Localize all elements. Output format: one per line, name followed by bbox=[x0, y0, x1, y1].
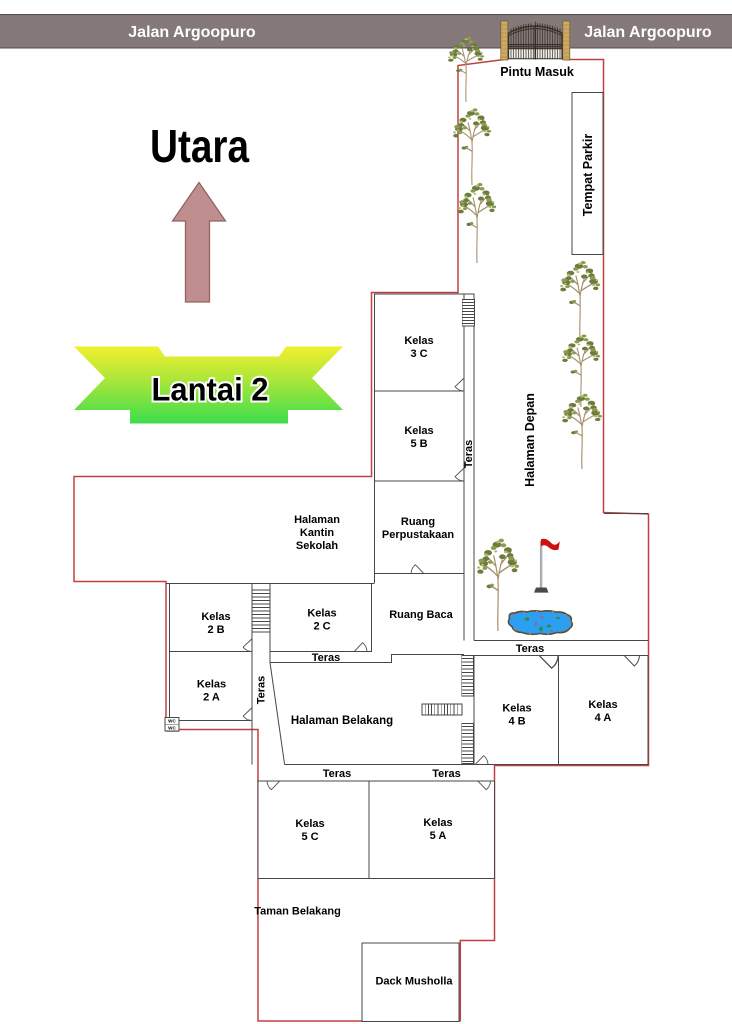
svg-text:Teras: Teras bbox=[323, 768, 352, 780]
svg-text:Jalan Argoopuro: Jalan Argoopuro bbox=[584, 24, 712, 41]
svg-text:Kelas: Kelas bbox=[588, 699, 617, 711]
svg-text:Kelas: Kelas bbox=[404, 425, 433, 437]
svg-text:Halaman: Halaman bbox=[294, 514, 340, 526]
svg-text:4 B: 4 B bbox=[508, 716, 525, 728]
svg-text:Kelas: Kelas bbox=[197, 679, 226, 691]
svg-text:Kelas: Kelas bbox=[295, 818, 324, 830]
svg-text:Teras: Teras bbox=[516, 643, 545, 655]
svg-text:Kelas: Kelas bbox=[307, 608, 336, 620]
svg-text:Kelas: Kelas bbox=[201, 611, 230, 623]
svg-text:Taman Belakang: Taman Belakang bbox=[254, 906, 341, 918]
svg-text:3 C: 3 C bbox=[410, 348, 427, 360]
svg-text:Teras: Teras bbox=[312, 652, 341, 664]
svg-text:Kelas: Kelas bbox=[423, 817, 452, 829]
svg-text:Kelas: Kelas bbox=[502, 703, 531, 715]
svg-text:Halaman Belakang: Halaman Belakang bbox=[291, 715, 393, 727]
svg-text:2 A: 2 A bbox=[203, 692, 220, 704]
svg-text:Teras: Teras bbox=[432, 768, 461, 780]
svg-text:2 C: 2 C bbox=[313, 621, 330, 633]
svg-text:5 A: 5 A bbox=[430, 830, 447, 842]
svg-text:Lantai 2: Lantai 2 bbox=[152, 372, 269, 408]
svg-text:5 B: 5 B bbox=[410, 438, 427, 450]
svg-text:Teras: Teras bbox=[463, 440, 475, 469]
svg-text:Perpustakaan: Perpustakaan bbox=[382, 529, 454, 541]
svg-text:Utara: Utara bbox=[150, 120, 249, 172]
svg-text:5 C: 5 C bbox=[301, 831, 318, 843]
svg-text:Ruang: Ruang bbox=[401, 516, 435, 528]
svg-text:WC: WC bbox=[168, 719, 176, 724]
svg-text:WC: WC bbox=[168, 725, 176, 730]
svg-text:Jalan Argoopuro: Jalan Argoopuro bbox=[128, 24, 256, 41]
svg-text:4 A: 4 A bbox=[595, 712, 612, 724]
svg-text:Teras: Teras bbox=[256, 676, 268, 705]
svg-text:Pintu Masuk: Pintu Masuk bbox=[500, 65, 574, 79]
svg-text:Tempat Parkir: Tempat Parkir bbox=[581, 134, 595, 217]
svg-text:Ruang Baca: Ruang Baca bbox=[389, 609, 453, 621]
svg-text:Kelas: Kelas bbox=[404, 335, 433, 347]
svg-text:Kantin: Kantin bbox=[300, 527, 335, 539]
svg-text:Halaman Depan: Halaman Depan bbox=[523, 393, 537, 487]
svg-text:Dack Musholla: Dack Musholla bbox=[375, 976, 453, 988]
svg-text:Sekolah: Sekolah bbox=[296, 540, 338, 552]
svg-text:2 B: 2 B bbox=[207, 624, 224, 636]
